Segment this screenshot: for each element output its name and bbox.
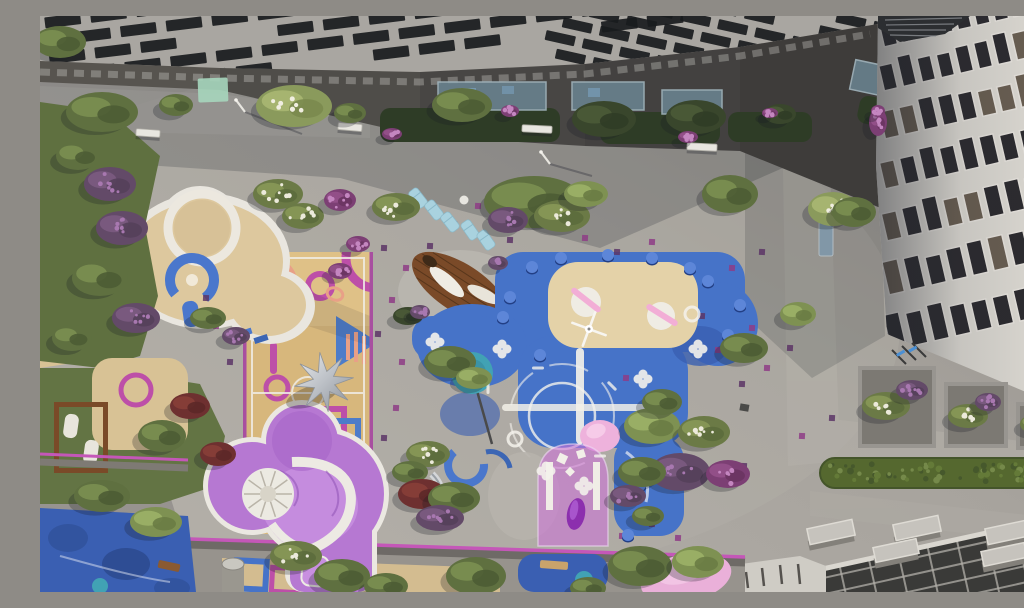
render-canvas: Aerial top-down architectural rendering … xyxy=(40,16,1024,592)
court-magenta-bar xyxy=(270,342,277,374)
mint-entrance-mat xyxy=(198,77,229,102)
sand-inset xyxy=(548,262,698,348)
side-table xyxy=(460,196,469,205)
pink-canopy-structure xyxy=(538,444,608,546)
long-hedge xyxy=(820,458,1024,488)
vent-cylinder xyxy=(222,558,244,592)
spiral-stair xyxy=(242,468,294,520)
courtyard-aerial-render: Aerial top-down architectural rendering … xyxy=(40,16,1024,592)
